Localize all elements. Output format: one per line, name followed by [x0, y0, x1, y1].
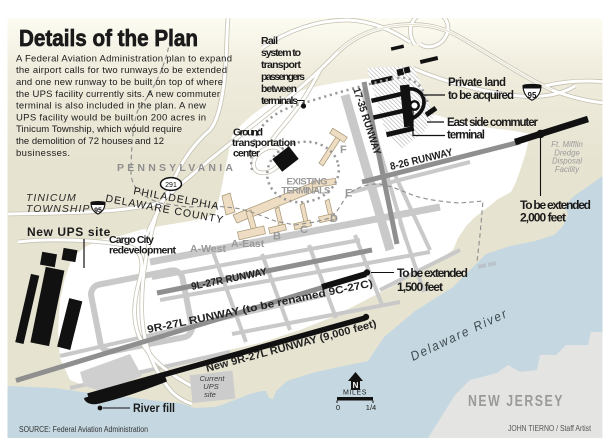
svg-text:C: C	[300, 224, 308, 236]
svg-text:Rail: Rail	[261, 35, 278, 47]
svg-text:A-East: A-East	[231, 238, 265, 250]
svg-text:NEW JERSEY: NEW JERSEY	[468, 393, 564, 410]
svg-text:the demolition of 72 houses an: the demolition of 72 houses and 12	[16, 136, 164, 147]
svg-text:redevelopment: redevelopment	[109, 245, 177, 257]
svg-text:95: 95	[94, 207, 102, 214]
svg-text:and one new runway to be built: and one new runway to be built on top of…	[16, 77, 223, 88]
svg-text:PENNSYLVANIA: PENNSYLVANIA	[117, 162, 236, 174]
svg-text:A-West: A-West	[190, 243, 226, 255]
svg-text:Private land: Private land	[448, 77, 506, 89]
svg-text:SOURCE: Federal Aviation Admin: SOURCE: Federal Aviation Administration	[19, 425, 148, 434]
svg-text:Tinicum Township, which would: Tinicum Township, which would require	[16, 124, 182, 135]
svg-text:2,000 feet: 2,000 feet	[520, 211, 566, 225]
svg-text:291: 291	[165, 182, 177, 189]
svg-text:A Federal Aviation Administrat: A Federal Aviation Administration plan t…	[16, 53, 232, 64]
svg-text:to be acquired: to be acquired	[448, 90, 514, 102]
svg-text:the UPS facility currently sit: the UPS facility currently sits. A new c…	[16, 89, 220, 100]
svg-text:site: site	[204, 390, 216, 399]
svg-text:1,500 feet: 1,500 feet	[397, 280, 443, 294]
svg-text:UPS facility would be built on: UPS facility would be built on 200 acres…	[16, 112, 206, 123]
svg-text:between: between	[261, 83, 297, 95]
svg-text:system to: system to	[261, 47, 301, 59]
svg-text:Details of the Plan: Details of the Plan	[19, 25, 198, 51]
svg-text:transport: transport	[261, 59, 302, 71]
svg-text:New UPS site: New UPS site	[27, 225, 111, 239]
svg-text:River fill: River fill	[133, 403, 175, 415]
svg-text:center: center	[233, 148, 260, 160]
svg-text:D: D	[330, 213, 338, 225]
svg-text:To be extended: To be extended	[397, 266, 468, 280]
svg-text:the airport calls for two runw: the airport calls for two runways to be …	[16, 65, 227, 76]
svg-text:F: F	[340, 144, 347, 156]
svg-text:passengers: passengers	[261, 71, 305, 83]
svg-text:1/4: 1/4	[366, 403, 376, 412]
svg-text:terminal is also included in t: terminal is also included in the plan. A…	[16, 101, 206, 112]
svg-text:JOHN TIERNO / Staff Artist: JOHN TIERNO / Staff Artist	[508, 424, 592, 433]
svg-text:TOWNSHIP: TOWNSHIP	[26, 203, 90, 215]
svg-text:terminals: terminals	[261, 95, 298, 107]
svg-text:B: B	[273, 231, 281, 243]
svg-text:businesses.: businesses.	[16, 148, 70, 159]
svg-text:East side commuter: East side commuter	[447, 117, 539, 129]
svg-text:MILES: MILES	[343, 390, 367, 397]
svg-text:0: 0	[336, 403, 340, 412]
svg-text:TERMINALS: TERMINALS	[282, 186, 331, 197]
svg-text:E: E	[345, 188, 352, 200]
svg-text:95: 95	[528, 91, 537, 100]
svg-text:terminal: terminal	[447, 130, 485, 142]
svg-text:Facility: Facility	[555, 165, 580, 174]
